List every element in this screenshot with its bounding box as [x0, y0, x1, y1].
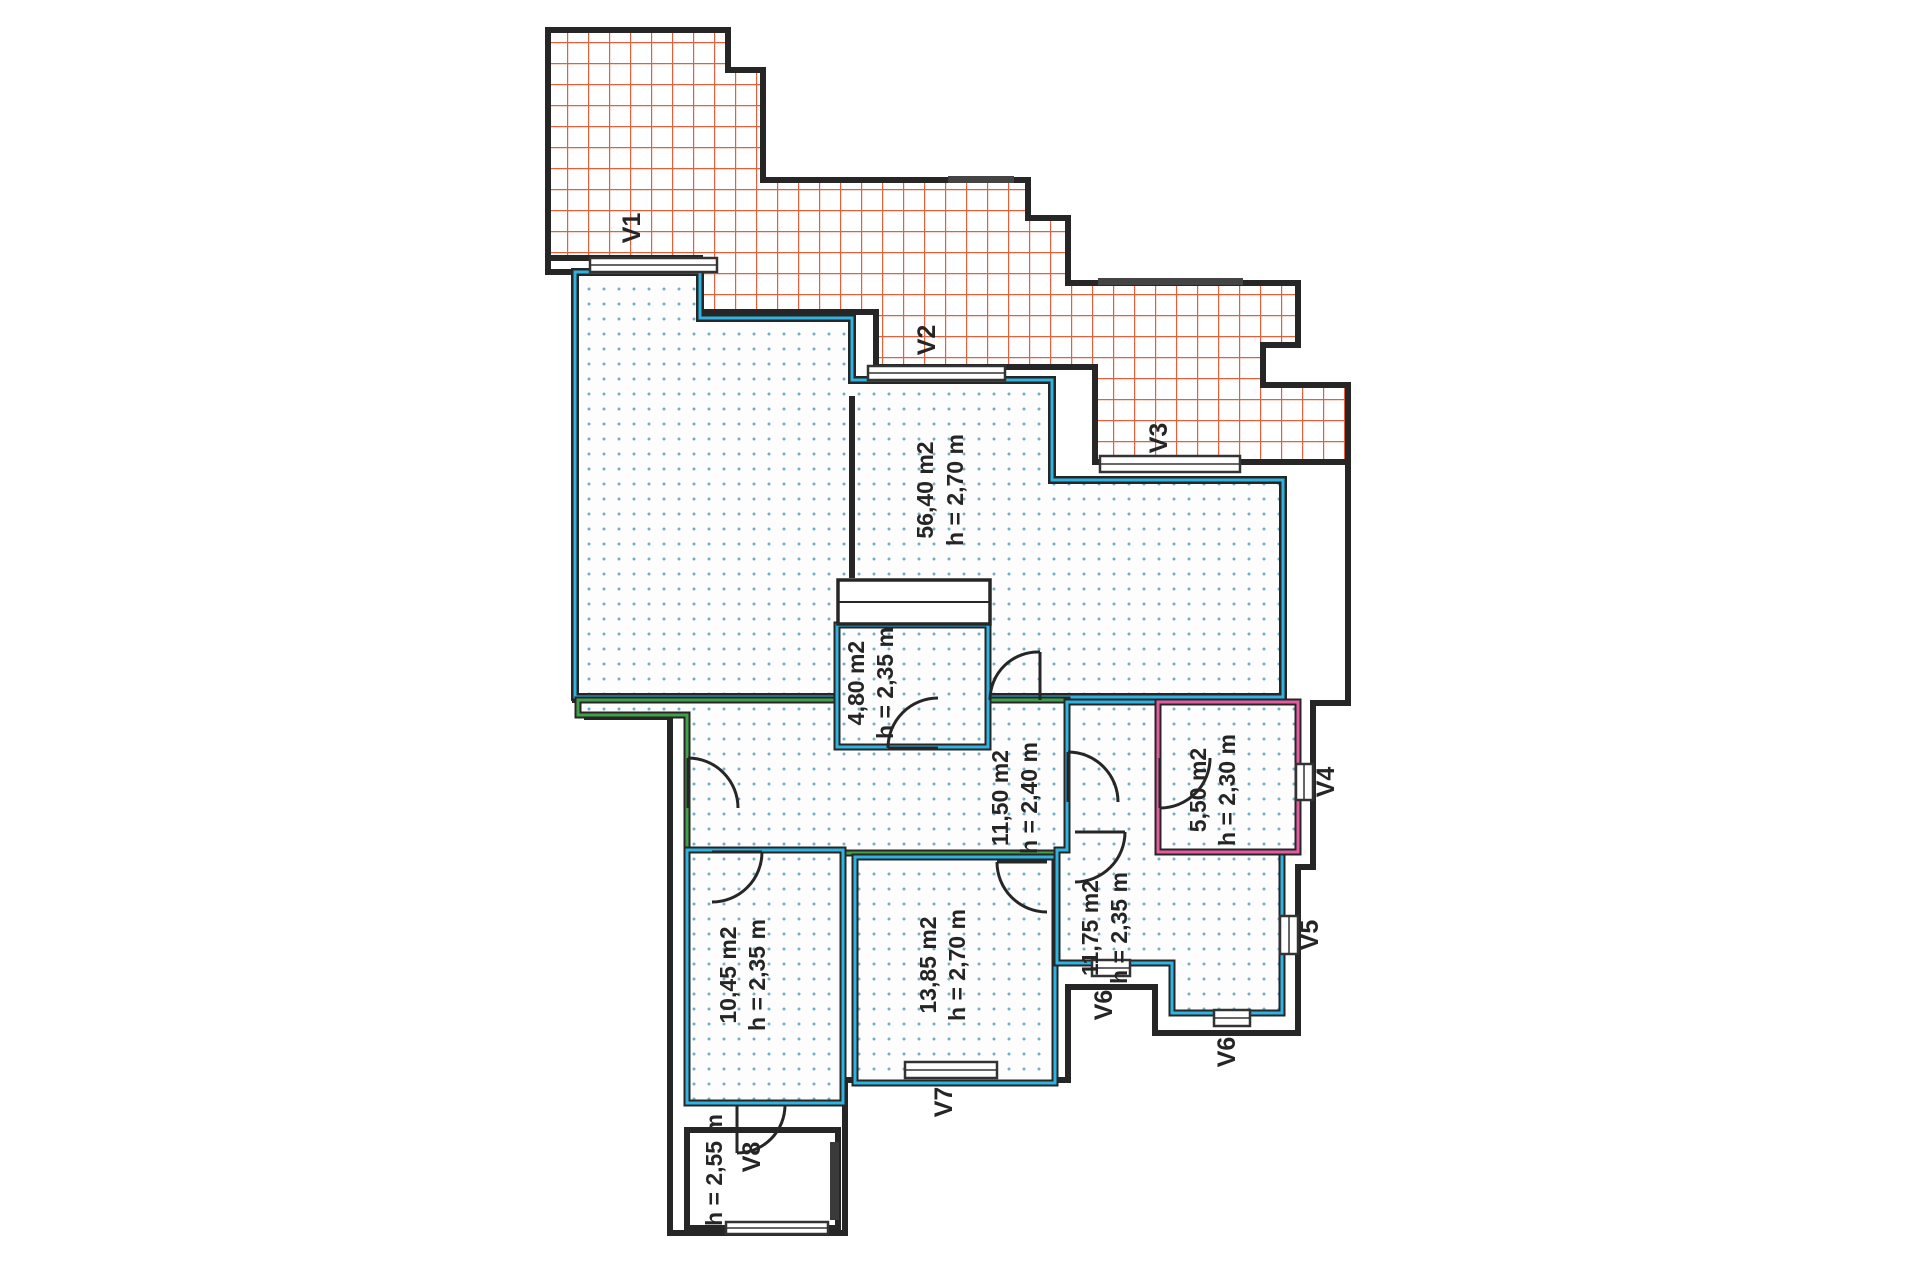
window-v6-right [1214, 1010, 1250, 1026]
room-13-85-area: 13,85 m2 [915, 916, 941, 1013]
room-5-50-area: 5,50 m2 [1185, 748, 1211, 832]
window-label-v8: V8 [738, 1142, 766, 1173]
window-label-v3: V3 [1145, 423, 1173, 454]
room-11-50-area: 11,50 m2 [987, 750, 1013, 846]
window-label-v4: V4 [1312, 767, 1340, 798]
room-4-80-ceiling: h = 2,35 m [872, 627, 898, 739]
window-label-v2: V2 [913, 325, 941, 356]
window-v3 [1100, 456, 1240, 472]
room-bottom-ceiling: h = 2,55 m [701, 1114, 727, 1226]
room-56-40-ceiling: h = 2,70 m [942, 434, 968, 546]
window-label-v7: V7 [930, 1087, 958, 1118]
room-11-50-ceiling: h = 2,40 m [1016, 742, 1042, 854]
window-bottom-room [726, 1222, 828, 1234]
window-v7 [905, 1062, 997, 1078]
room-11-75-ceiling: h = 2,35 m [1106, 872, 1132, 984]
window-label-v5: V5 [1296, 920, 1324, 951]
room-5-50-ceiling: h = 2,30 m [1214, 734, 1240, 846]
window-label-v6-right: V6 [1213, 1037, 1241, 1068]
room-10-45-ceiling: h = 2,35 m [744, 919, 770, 1031]
room-10-45-area: 10,45 m2 [715, 926, 741, 1023]
radiator [830, 1142, 839, 1220]
terrace-sill-2 [1098, 278, 1243, 285]
room-11-75-area: 11,75 m2 [1077, 880, 1103, 976]
window-v2 [868, 366, 1005, 380]
floor-plan-canvas: 56,40 m2 h = 2,70 m 4,80 m2 h = 2,35 m 1… [0, 0, 1920, 1280]
room-13-85-ceiling: h = 2,70 m [944, 909, 970, 1021]
window-v1 [590, 258, 717, 272]
window-label-v6-left: V6 [1090, 990, 1118, 1021]
room-56-40-area: 56,40 m2 [912, 441, 938, 538]
room-4-80-area: 4,80 m2 [843, 641, 869, 725]
window-label-v1: V1 [618, 213, 646, 244]
terrace-sill-1 [948, 176, 1014, 183]
window-v4 [1296, 764, 1313, 800]
